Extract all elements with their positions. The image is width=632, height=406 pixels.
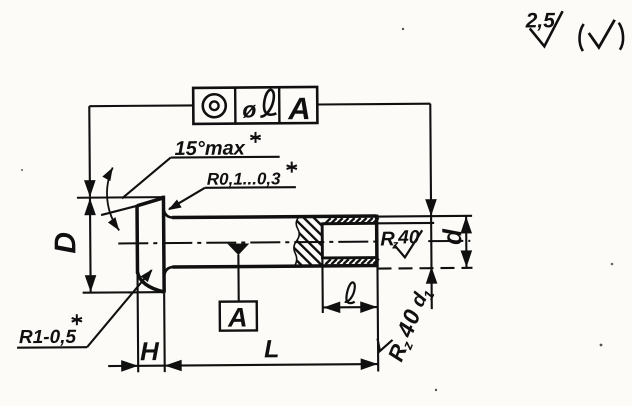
svg-text:H: H (140, 336, 160, 366)
svg-text:40: 40 (397, 227, 420, 248)
svg-text:D: D (49, 232, 82, 254)
svg-text:A: A (227, 303, 248, 333)
svg-text:R1-0,5: R1-0,5 (19, 327, 77, 348)
svg-text:15°max: 15°max (175, 138, 246, 161)
svg-text:L: L (264, 335, 279, 363)
svg-text:d: d (437, 228, 467, 245)
svg-text:R0,1...0,3: R0,1...0,3 (207, 169, 281, 189)
svg-text:ø: ø (242, 96, 256, 122)
svg-text:A: A (287, 91, 311, 126)
